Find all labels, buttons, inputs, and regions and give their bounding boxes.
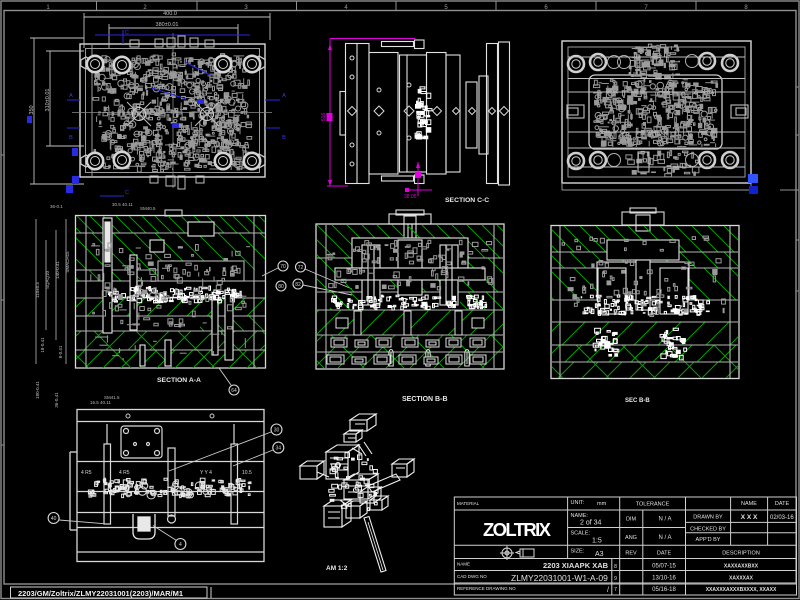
- svg-text:NAME:: NAME:: [571, 513, 589, 519]
- svg-text:A3: A3: [595, 551, 604, 558]
- svg-text:DIM: DIM: [626, 517, 637, 523]
- svg-text:70: 70: [280, 264, 286, 270]
- svg-text:AM 1:2: AM 1:2: [326, 565, 348, 572]
- svg-text:8: 8: [614, 564, 617, 570]
- svg-text:X X X: X X X: [741, 514, 758, 521]
- svg-text:30: 30: [274, 428, 280, 434]
- svg-text:310±0.01: 310±0.01: [45, 89, 51, 112]
- svg-text:82: 82: [295, 282, 301, 288]
- svg-text:140-0.41: 140-0.41: [55, 261, 60, 279]
- svg-text:TOLERANCE: TOLERANCE: [636, 502, 670, 508]
- svg-text:16.5 40.11: 16.5 40.11: [90, 400, 111, 405]
- svg-text:mm: mm: [597, 501, 607, 507]
- svg-text:C: C: [125, 190, 129, 196]
- svg-text:DESCRIPTION: DESCRIPTION: [722, 551, 760, 557]
- svg-text:NAME: NAME: [457, 562, 470, 567]
- svg-text:SECTION A-A: SECTION A-A: [157, 377, 201, 384]
- svg-text:4 R5: 4 R5: [119, 470, 130, 476]
- svg-text:2203 XIAAPK XAB: 2203 XIAAPK XAB: [543, 561, 609, 570]
- svg-text:REV: REV: [625, 551, 637, 557]
- svg-text:64: 64: [231, 388, 237, 394]
- svg-text:XAXXXAX: XAXXXAX: [729, 576, 754, 582]
- svg-text:SCALE:: SCALE:: [571, 531, 591, 537]
- svg-text:SMACH15: SMACH15: [65, 251, 70, 273]
- svg-text:180-0.41: 180-0.41: [35, 381, 40, 399]
- svg-text:4 R5: 4 R5: [81, 470, 92, 476]
- svg-text:CHECKED BY: CHECKED BY: [690, 527, 726, 533]
- svg-text:350: 350: [29, 105, 35, 114]
- svg-text:9: 9: [614, 576, 617, 582]
- svg-text:7: 7: [614, 587, 617, 593]
- svg-text:13/10-16: 13/10-16: [652, 576, 676, 582]
- svg-text:A: A: [69, 93, 73, 99]
- svg-text:APP'D BY: APP'D BY: [696, 537, 721, 543]
- svg-text:N / A: N / A: [658, 535, 671, 541]
- svg-text:8-0.41: 8-0.41: [58, 345, 63, 358]
- svg-text:C: C: [125, 30, 129, 36]
- svg-text:XAXXAXXBXX: XAXXAXXBXX: [724, 564, 759, 570]
- svg-text:30.5 40.11: 30.5 40.11: [112, 202, 133, 207]
- svg-text:B: B: [69, 135, 73, 141]
- svg-text:516: 516: [321, 113, 327, 122]
- svg-text:UNIT:: UNIT:: [571, 500, 585, 506]
- svg-text:380±0.01: 380±0.01: [156, 22, 179, 28]
- svg-text:MATERIAL: MATERIAL: [457, 501, 480, 506]
- svg-text:10.5: 10.5: [242, 470, 252, 476]
- svg-text:SECTION B-B: SECTION B-B: [402, 396, 448, 403]
- svg-text:2 of 34: 2 of 34: [580, 520, 602, 527]
- svg-text:XXAXXXAXXXBXXXX, XXAXX: XXAXXXAXXXBXXXX, XXAXX: [706, 587, 777, 593]
- svg-text:SEC B-B: SEC B-B: [625, 398, 650, 404]
- svg-text:36-0.41: 36-0.41: [54, 392, 59, 408]
- svg-text:36-0.1: 36-0.1: [50, 204, 63, 209]
- svg-text:B: B: [282, 135, 286, 141]
- svg-text:DRAWN BY: DRAWN BY: [693, 515, 723, 521]
- svg-text:40: 40: [51, 516, 57, 522]
- svg-text:110±0.5: 110±0.5: [35, 282, 40, 298]
- svg-text:02/03-16: 02/03-16: [770, 515, 794, 521]
- svg-text:ZLMY22031001-W1-A-09: ZLMY22031001-W1-A-09: [511, 573, 608, 583]
- svg-text:Y Y 4: Y Y 4: [200, 470, 212, 476]
- svg-text:38.05: 38.05: [404, 194, 417, 200]
- svg-text:2203/GM/Zoltrix/ZLMY22031001(2: 2203/GM/Zoltrix/ZLMY22031001(2203)/MAR/M…: [18, 589, 183, 598]
- svg-text:ANG: ANG: [625, 535, 637, 541]
- svg-text:05/07-15: 05/07-15: [652, 564, 676, 570]
- svg-text:SM40.5: SM40.5: [140, 206, 156, 211]
- svg-text:34: 34: [276, 446, 282, 452]
- svg-text:/: /: [607, 587, 609, 594]
- svg-text:1:5: 1:5: [592, 538, 602, 545]
- svg-text:SECTION C-C: SECTION C-C: [445, 197, 489, 204]
- svg-text:SQAQ10: SQAQ10: [45, 271, 50, 290]
- svg-text:80: 80: [278, 284, 284, 290]
- svg-text:18-0.41: 18-0.41: [40, 337, 45, 353]
- svg-text:400.0: 400.0: [163, 11, 177, 17]
- svg-text:4: 4: [179, 542, 182, 548]
- svg-text:72: 72: [298, 265, 304, 271]
- svg-text:DATE: DATE: [775, 501, 790, 507]
- svg-text:CAD DWG NO: CAD DWG NO: [457, 574, 487, 579]
- svg-text:NAME: NAME: [741, 501, 757, 507]
- svg-text:N / A: N / A: [658, 517, 671, 523]
- svg-text:SIZE:: SIZE:: [571, 549, 585, 555]
- svg-text:ZOLTRIX: ZOLTRIX: [483, 519, 552, 540]
- svg-text:05/16-18: 05/16-18: [652, 587, 676, 593]
- svg-text:A: A: [282, 93, 286, 99]
- svg-text:DATE: DATE: [657, 551, 672, 557]
- svg-text:REFERENCE DRAWING NO: REFERENCE DRAWING NO: [457, 586, 516, 591]
- svg-text:SM41.5: SM41.5: [104, 395, 120, 400]
